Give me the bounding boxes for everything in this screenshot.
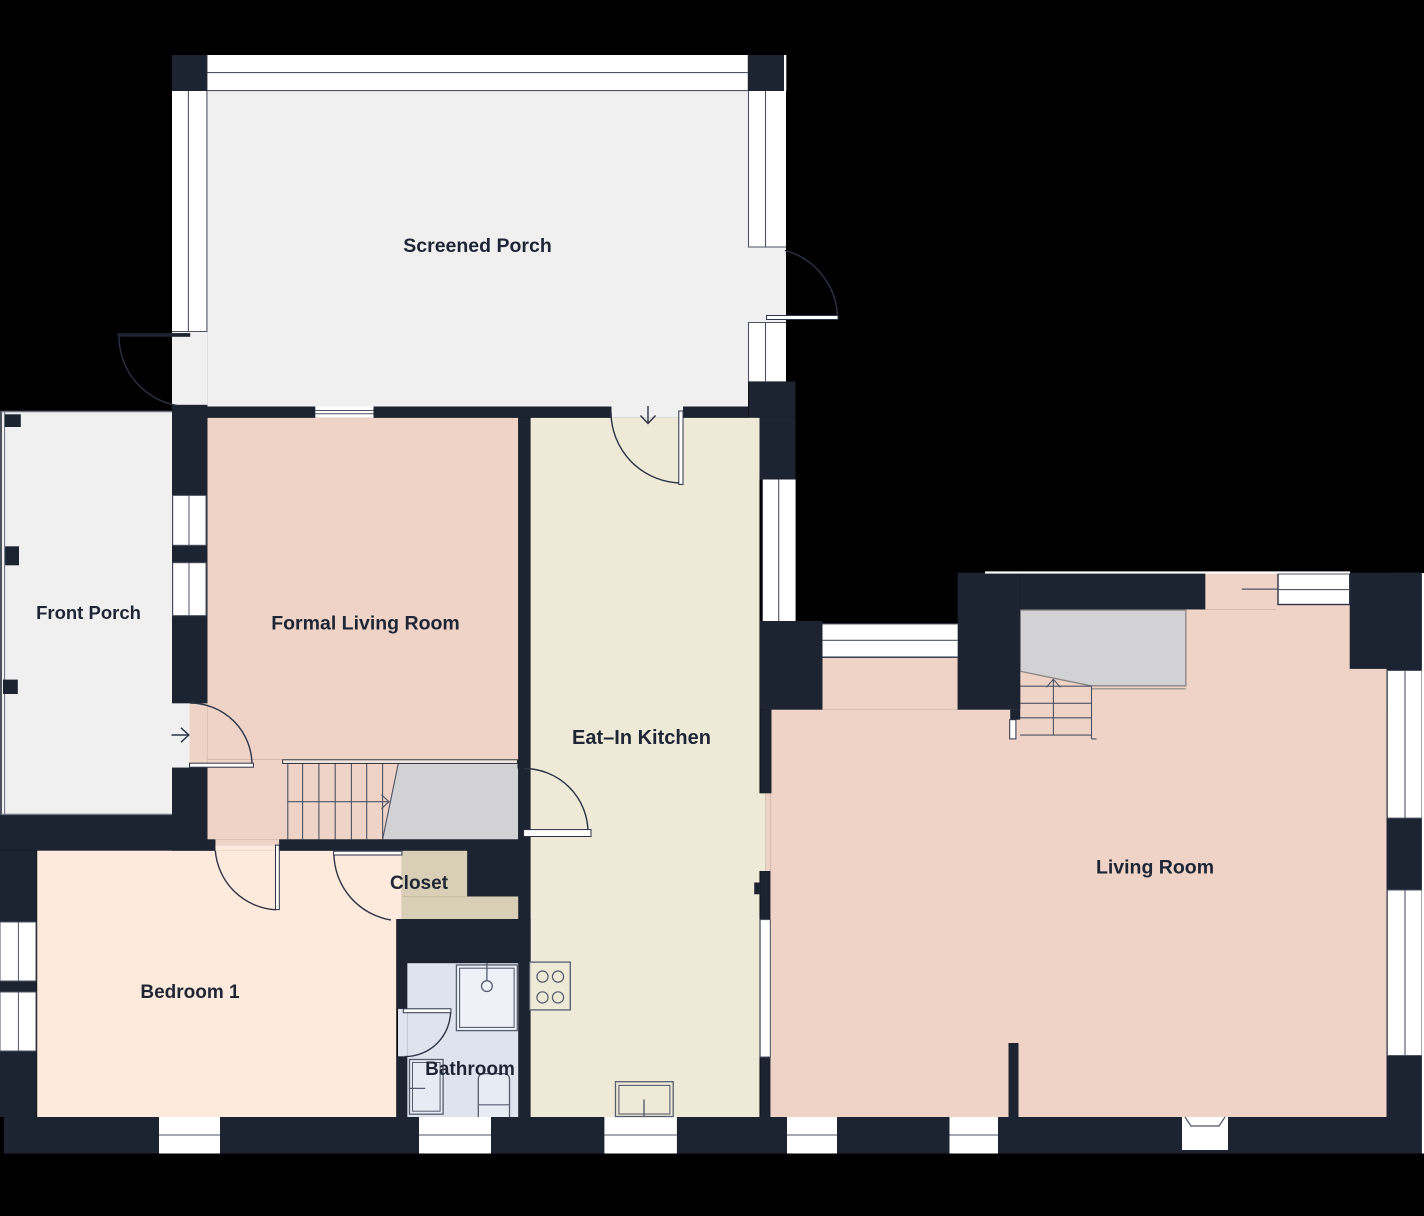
svg-text:Screened Porch: Screened Porch <box>403 235 551 257</box>
svg-text:Living Room: Living Room <box>1096 857 1214 879</box>
svg-text:Eat–In Kitchen: Eat–In Kitchen <box>572 727 711 749</box>
svg-text:Bedroom 1: Bedroom 1 <box>140 982 240 1003</box>
svg-text:Closet: Closet <box>390 873 449 894</box>
svg-text:Front Porch: Front Porch <box>36 602 141 623</box>
svg-text:Bathroom: Bathroom <box>425 1059 515 1080</box>
svg-text:Formal Living Room: Formal Living Room <box>271 613 460 635</box>
